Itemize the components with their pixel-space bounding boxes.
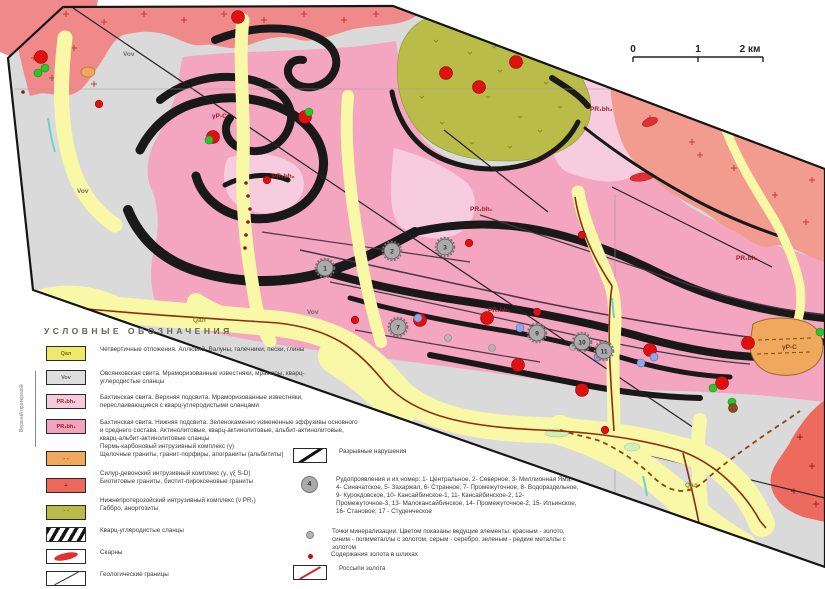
scale-bar-tick-label: 1	[695, 44, 701, 55]
map-unit-label: Qал	[685, 482, 698, 489]
polymetal-dot	[637, 359, 645, 367]
gold-occurrence-dot	[533, 308, 541, 316]
gold-occurrence-dot	[578, 231, 586, 239]
ore-occurrence-circle: 2	[383, 242, 402, 261]
svg-text:1: 1	[323, 265, 327, 272]
svg-text:9: 9	[535, 330, 539, 337]
alkaline-granite-small-body	[81, 67, 95, 77]
rare-metal-dot	[205, 136, 213, 144]
map-unit-label: Vov	[307, 309, 319, 316]
scale-bar-tick-label: 2 км	[740, 44, 761, 55]
gold-slick-dot	[244, 233, 248, 237]
map-unit-label: Qал	[193, 317, 206, 324]
gold-slick-dot	[21, 90, 25, 94]
gold-occurrence-dot	[716, 377, 729, 390]
ore-occurrence-circle: 7	[389, 318, 408, 337]
ore-occurrence-circle: 9	[528, 324, 547, 343]
polymetal-dot	[516, 324, 524, 332]
gabbro-tick-mark	[464, 30, 468, 32]
scale-bar-line	[633, 57, 763, 62]
gold-occurrence-dot	[576, 384, 589, 397]
gold-slick-dot	[243, 246, 247, 250]
map-unit-label: PR₁bh₁	[736, 255, 759, 262]
gold-occurrence-dot	[440, 67, 453, 80]
screenshot-root: 012 км 123791011VovVovVovγP-CPR₁bh₂PR₁bh…	[0, 0, 825, 589]
gold-occurrence-dot	[232, 11, 245, 24]
map-unit-label: Vov	[123, 51, 135, 58]
ore-occurrence-circle: 3	[436, 238, 455, 257]
rare-metal-dot	[816, 328, 824, 336]
ore-occurrence-circle: 10	[573, 333, 592, 352]
silver-dot	[489, 345, 496, 352]
polymetal-dot	[414, 314, 422, 322]
geological-map: 012 км 123791011VovVovVovγP-CPR₁bh₂PR₁bh…	[0, 0, 825, 589]
gold-occurrence-dot	[35, 51, 48, 64]
rare-metal-dot	[34, 69, 42, 77]
svg-text:7: 7	[396, 324, 400, 331]
rare-metal-dot	[41, 64, 49, 72]
map-unit-label: PR₁bh₁	[470, 206, 493, 213]
gold-occurrence-dot	[742, 337, 755, 350]
scale-bar: 012 км	[630, 44, 763, 62]
ore-occurrence-circle: 11	[595, 342, 614, 361]
ore-occurrence-circle: 1	[316, 259, 335, 278]
silver-dot	[445, 335, 452, 342]
gold-slick-dot	[246, 194, 250, 198]
polymetal-dot	[650, 353, 658, 361]
map-unit-label: PR₁bh₂	[272, 173, 295, 180]
gold-occurrence-dot	[601, 426, 609, 434]
gold-occurrence-dot	[510, 56, 523, 69]
gold-occurrence-dot	[512, 359, 525, 372]
gold-slick-dot	[246, 220, 250, 224]
map-unit-label: PR₁bh₂	[590, 106, 613, 113]
rare-metal-dot	[709, 384, 717, 392]
gold-occurrence-dot	[351, 316, 359, 324]
marsh-patch	[624, 443, 640, 451]
gold-occurrence-dot	[473, 81, 486, 94]
gold-occurrence-dot	[465, 239, 473, 247]
map-unit-label: Vov	[77, 188, 89, 195]
gold-slick-dot	[248, 207, 252, 211]
svg-text:11: 11	[601, 348, 608, 355]
map-unit-label: PR₁bh₁	[488, 307, 511, 314]
map-unit-label: γP-C	[212, 113, 227, 120]
brown-dot	[729, 404, 738, 413]
gold-slick-dot	[244, 181, 248, 185]
scale-bar-tick-label: 0	[630, 44, 636, 55]
gold-occurrence-dot	[263, 176, 271, 184]
svg-text:2: 2	[390, 248, 394, 255]
rare-metal-dot	[305, 108, 313, 116]
gold-occurrence-dot	[95, 100, 103, 108]
svg-text:3: 3	[443, 244, 447, 251]
map-unit-label: γP-C	[782, 344, 797, 351]
svg-text:10: 10	[578, 339, 586, 346]
